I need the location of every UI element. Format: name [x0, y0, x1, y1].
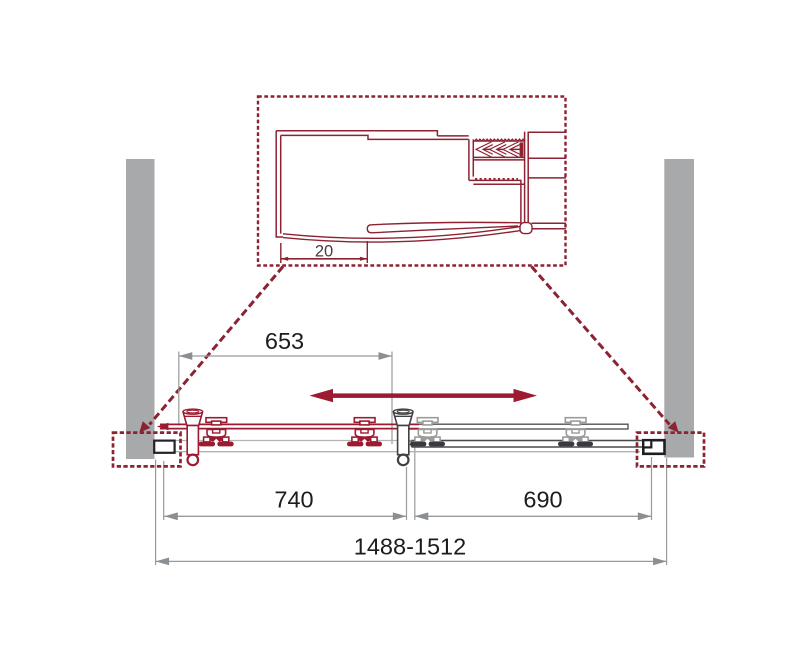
svg-text:1488-1512: 1488-1512 [354, 534, 466, 560]
svg-text:690: 690 [523, 487, 562, 513]
svg-text:653: 653 [265, 328, 304, 354]
svg-text:20: 20 [315, 243, 333, 261]
svg-text:740: 740 [274, 487, 313, 513]
